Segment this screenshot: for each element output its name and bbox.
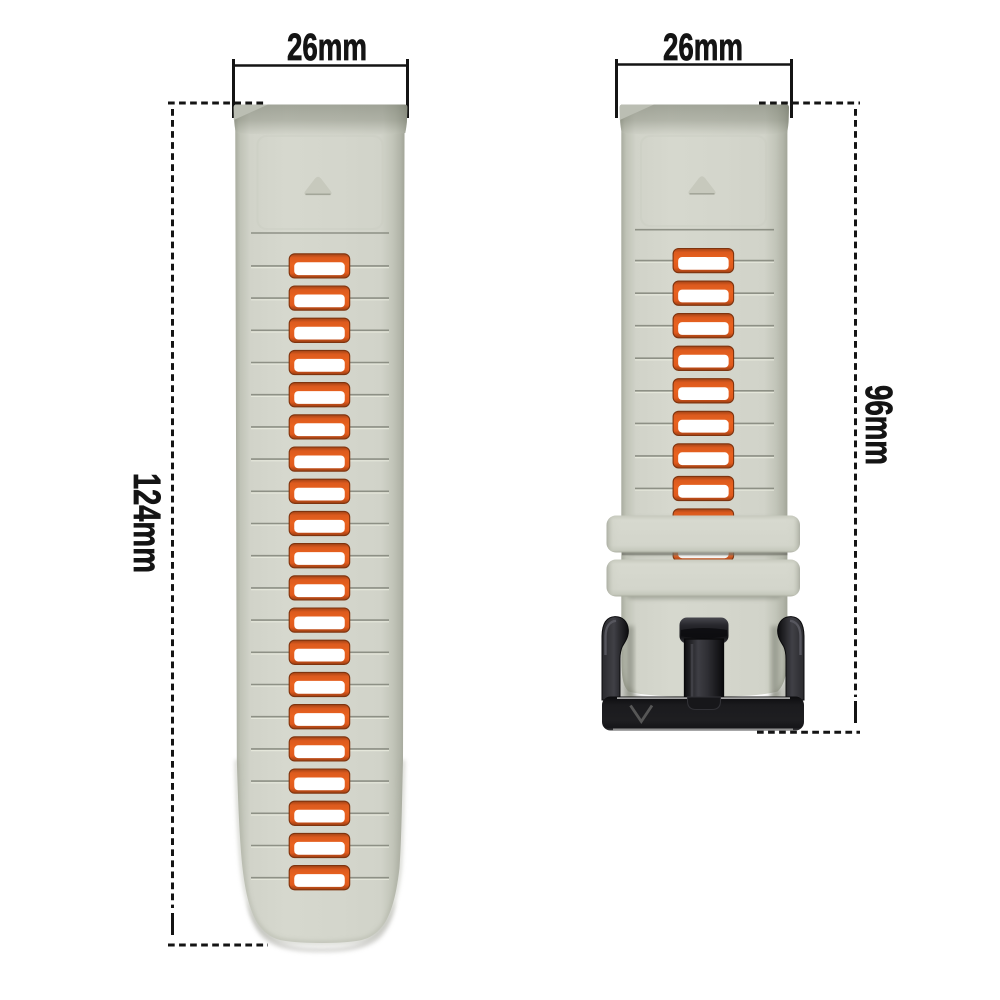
svg-text:96mm: 96mm (857, 385, 899, 465)
svg-text:124mm: 124mm (125, 473, 167, 573)
svg-text:26mm: 26mm (663, 27, 743, 69)
svg-text:26mm: 26mm (287, 27, 367, 69)
